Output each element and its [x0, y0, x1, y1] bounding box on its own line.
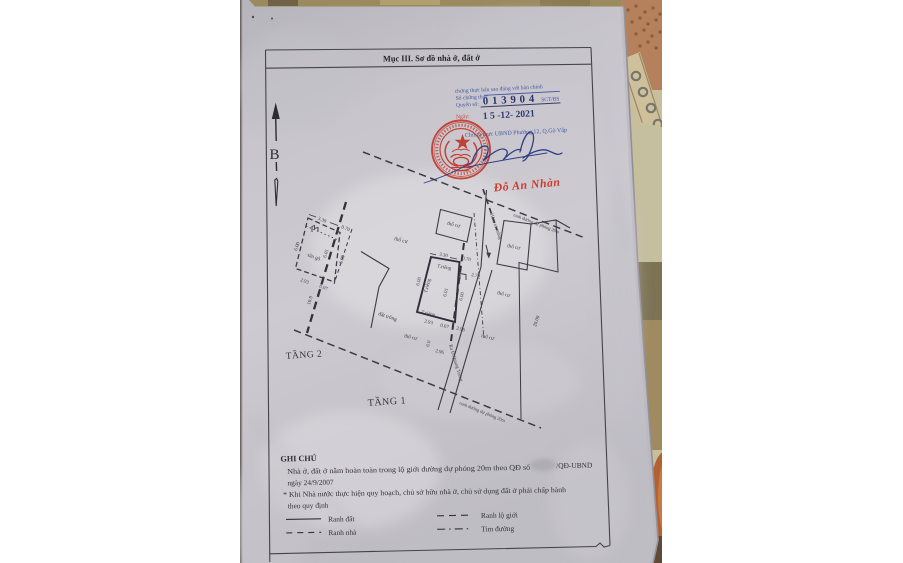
svg-text:Tim đường: Tim đường: [481, 524, 514, 534]
svg-text:Ngày:: Ngày:: [456, 114, 470, 121]
svg-text:ngày 24/9/2007: ngày 24/9/2007: [287, 478, 334, 488]
svg-text:B: B: [270, 147, 280, 163]
svg-text:Ranh lộ giới: Ranh lộ giới: [481, 510, 518, 520]
svg-text:Ranh đất: Ranh đất: [328, 514, 356, 523]
svg-text:Ranh nhà: Ranh nhà: [328, 528, 357, 538]
svg-text:Mục III. Sơ đồ nhà ở, đất ở: Mục III. Sơ đồ nhà ở, đất ở: [383, 52, 480, 63]
svg-text:/QĐ-UBND: /QĐ-UBND: [556, 461, 593, 471]
svg-text:theo quy định: theo quy định: [288, 501, 329, 511]
svg-text:SCT/BS: SCT/BS: [541, 96, 559, 103]
svg-text:GHI CHÚ: GHI CHÚ: [280, 453, 316, 464]
svg-text:Quyển số:: Quyển số:: [456, 101, 480, 109]
